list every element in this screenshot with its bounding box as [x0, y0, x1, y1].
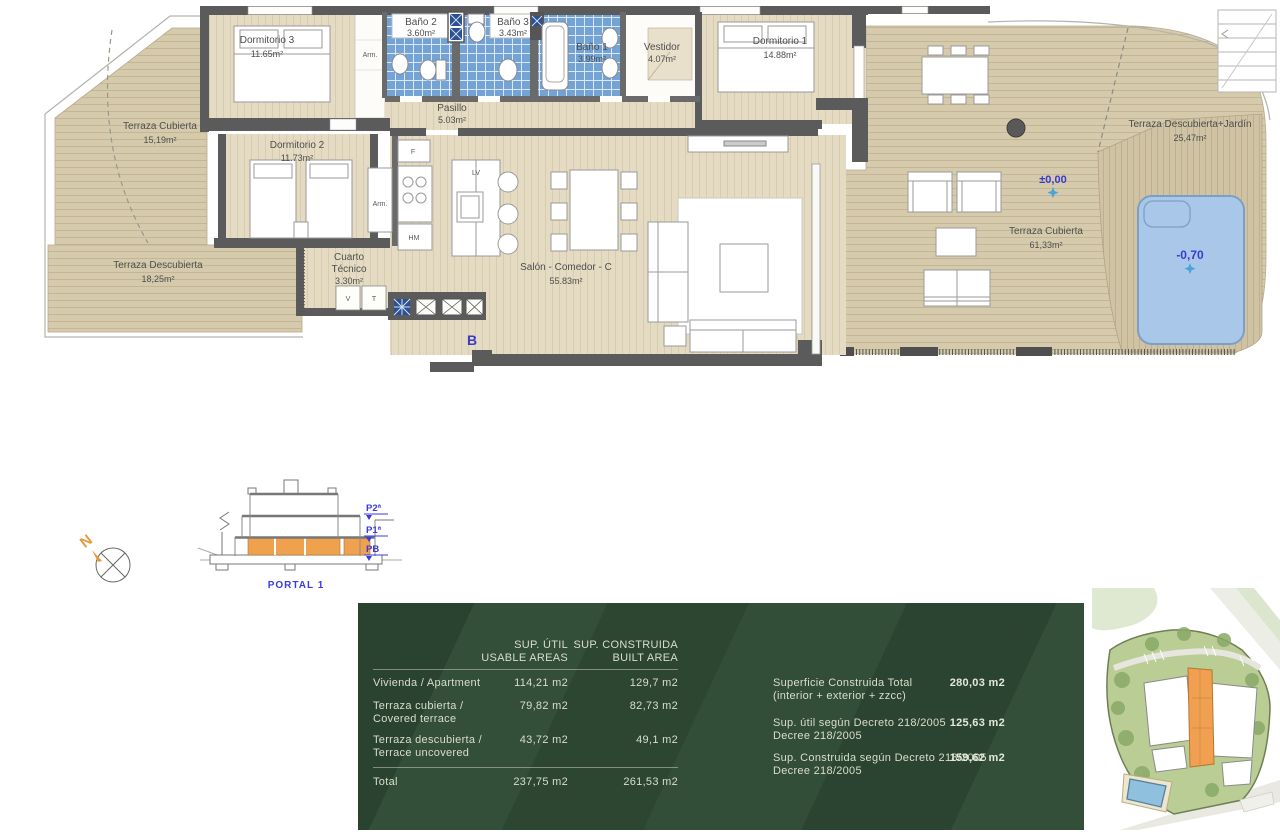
room-label: Terraza Cubierta [123, 121, 197, 132]
col-header-line: USABLE AREAS [448, 652, 568, 665]
table-divider [373, 669, 678, 670]
col-header-built: SUP. CONSTRUIDA BUILT AREA [568, 639, 678, 665]
terrace-uncovered-left: Terraza Descubierta 18,25m² [48, 245, 302, 332]
room-area: 11.73m² [281, 153, 313, 163]
summary-value: 125,63 m2 [905, 717, 1005, 730]
areas-panel: SUP. ÚTIL USABLE AREAS SUP. CONSTRUIDA B… [358, 603, 1084, 830]
room-area: 18,25m² [141, 274, 174, 284]
table-cell-util: 43,72 m2 [488, 734, 568, 747]
room-area: 55.83m² [549, 276, 582, 286]
room-area: 61,33m² [1029, 240, 1062, 250]
level-p2-label: P2ª [366, 503, 382, 514]
summary-value: 159,62 m2 [905, 752, 1005, 765]
room-label: Técnico [331, 264, 366, 275]
fridge-label: F [411, 149, 415, 156]
compass: N [77, 531, 130, 582]
col-header-usable: SUP. ÚTIL USABLE AREAS [448, 639, 568, 665]
tv-bench [688, 136, 788, 152]
summary-value: 280,03 m2 [905, 677, 1005, 690]
room-label: Vestidor [644, 42, 681, 53]
summary-label: Decree 218/2005 [773, 765, 862, 778]
coffee-table [720, 244, 768, 292]
level-marker-pool: -0,70 [1176, 248, 1204, 262]
room-label: Pasillo [437, 103, 467, 114]
room-label: Baño 1 [576, 42, 608, 53]
room-label: Baño 3 [497, 17, 529, 28]
portal-label: PORTAL 1 [268, 580, 325, 591]
closet-label: Arm. [363, 52, 378, 59]
section-levels: P2ª P1ª PB [364, 503, 388, 561]
glass-wall [812, 164, 820, 354]
room-label: Cuarto [334, 252, 364, 263]
table-row-label: Covered terrace [373, 713, 456, 726]
summary-label: (interior + exterior + zzcc) [773, 690, 906, 703]
dining-set [551, 170, 637, 251]
room-label: Terraza Descubierta+Jardín [1128, 119, 1251, 130]
room-label: Salón - Comedor - C [520, 262, 612, 273]
site-plan-map [1092, 588, 1280, 830]
floor-plan: Terraza Cubierta 15,19m² Terraza Descubi… [0, 0, 1280, 385]
room-label: Dormitorio 1 [753, 36, 808, 47]
room-label: Terraza Cubierta [1009, 226, 1083, 237]
total-built: 261,53 m2 [588, 776, 678, 789]
room-area: 4.07m² [648, 54, 676, 64]
section-diagram: N P2ª P1ª PB PORTAL 1 [70, 468, 410, 598]
level-pb-label: PB [366, 544, 379, 555]
stairs-sketch [1218, 10, 1276, 92]
table-cell-built: 49,1 m2 [588, 734, 678, 747]
room-label: Baño 2 [405, 17, 437, 28]
highlighted-building [1188, 668, 1214, 767]
entrance-b-label: B [467, 332, 477, 348]
dishwasher-label: LV [472, 170, 480, 177]
room-area: 5.03m² [438, 115, 466, 125]
outdoor-dining-set [922, 46, 989, 104]
kitchen-island [452, 160, 518, 256]
summary-label: Decree 218/2005 [773, 730, 862, 743]
col-header-line: BUILT AREA [568, 652, 678, 665]
highlighted-floor [248, 538, 340, 555]
table-cell-built: 129,7 m2 [588, 677, 678, 690]
room-label: Dormitorio 3 [240, 35, 295, 46]
total-label: Total [373, 776, 398, 789]
floorplan-sheet: { "colors": { "accent_orange": "#F0A050"… [0, 0, 1280, 830]
col-header-line: SUP. ÚTIL [448, 639, 568, 652]
total-util: 237,75 m2 [488, 776, 568, 789]
room-area: 3.43m² [499, 28, 527, 38]
table-row-label: Terrace uncovered [373, 747, 469, 760]
level-p1-label: P1ª [366, 525, 382, 536]
v-label: V [346, 296, 351, 303]
room-area: 3.99m² [578, 54, 606, 64]
table-cell-util: 114,21 m2 [488, 677, 568, 690]
summary-label: Superficie Construida Total [773, 677, 912, 690]
hm-label: HM [409, 235, 420, 242]
t-label: T [372, 296, 377, 303]
table-cell-util: 79,82 m2 [488, 700, 568, 713]
table-cell-built: 82,73 m2 [588, 700, 678, 713]
room-area: 15,19m² [143, 135, 176, 145]
north-label: N [77, 531, 96, 551]
site-plan [1092, 588, 1280, 830]
room-label: Dormitorio 2 [270, 140, 325, 151]
table-row-label: Vivienda / Apartment [373, 677, 480, 690]
room-area: 14.88m² [763, 50, 796, 60]
table-row-label: Terraza descubierta / [373, 734, 482, 747]
terrace-right: Terraza Cubierta 61,33m² Terraza Descubi… [840, 10, 1276, 356]
room-area: 3.60m² [407, 28, 435, 38]
col-header-line: SUP. CONSTRUIDA [568, 639, 678, 652]
room-area: 3.30m² [335, 276, 363, 286]
column-dot [1007, 119, 1025, 137]
level-marker-main: ±0,00 [1039, 174, 1066, 186]
room-area: 11.65m² [251, 49, 283, 59]
room-area: 25,47m² [1173, 133, 1206, 143]
washer-box [448, 12, 464, 42]
table-row-label: Terraza cubierta / [373, 700, 463, 713]
room-label: Terraza Descubierta [113, 260, 203, 271]
table-divider [373, 767, 678, 768]
closet-label: Arm. [373, 201, 388, 208]
